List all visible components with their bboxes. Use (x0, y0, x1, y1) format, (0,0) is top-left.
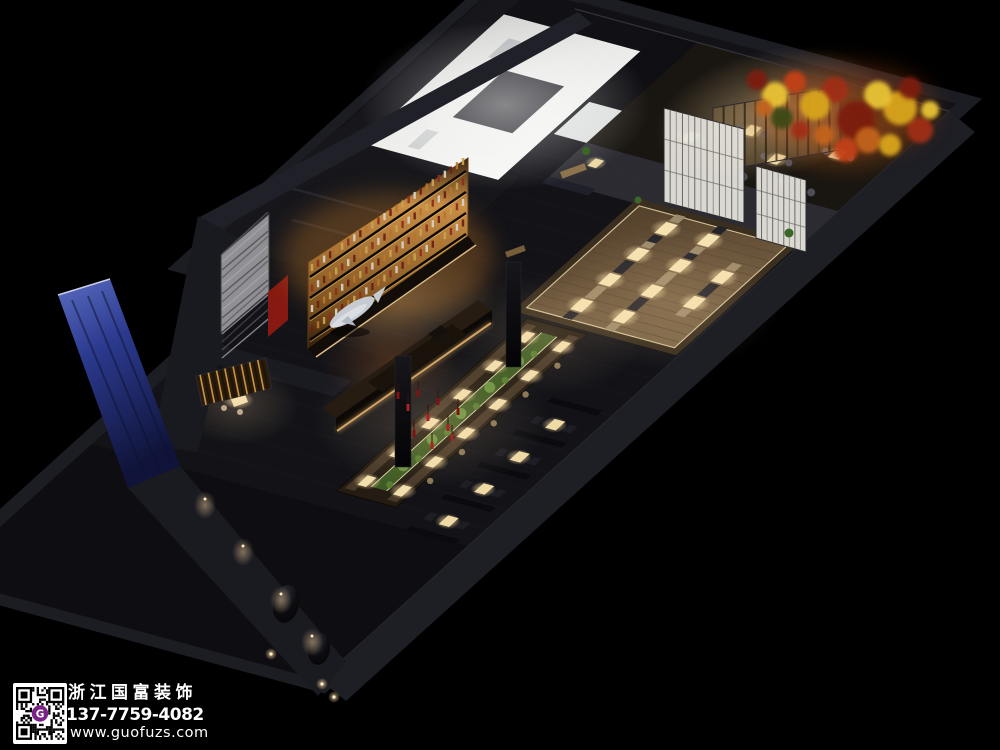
qr-cell (23, 708, 25, 710)
foliage-cluster (784, 71, 806, 93)
wine-bottle (365, 246, 367, 253)
qr-cell (39, 699, 41, 701)
qr-cell (28, 717, 30, 719)
wine-bottle (329, 251, 331, 258)
qr-cell (30, 719, 32, 721)
qr-cell (37, 731, 39, 733)
shoji-screen-small (756, 166, 806, 252)
wine-bottle (377, 279, 379, 286)
qr-cell (46, 701, 48, 703)
qr-cell (51, 719, 53, 721)
qr-cell (62, 719, 64, 721)
wine-bottle (438, 175, 440, 182)
qr-cell (16, 708, 18, 710)
wine-bottle (426, 204, 428, 211)
wine-bottle (389, 209, 391, 216)
qr-cell (53, 715, 55, 717)
wine-bottle (371, 242, 373, 249)
wine-bottle (353, 275, 355, 282)
wine-bottle (456, 162, 458, 169)
qr-cell (34, 726, 36, 728)
qr-cell (62, 710, 64, 712)
qr-cell (30, 708, 32, 710)
qr-cell (41, 728, 43, 730)
qr-cell (39, 724, 41, 726)
wine-bottle (450, 228, 452, 235)
qr-cell (32, 687, 34, 689)
foliage-cluster (921, 101, 939, 119)
entry-light (332, 695, 335, 698)
red-ornament (447, 424, 450, 431)
wine-bottle (377, 238, 379, 245)
entry-light (320, 682, 323, 685)
qr-cell (39, 728, 41, 730)
shoji2-panel (756, 166, 806, 252)
qr-cell (57, 738, 59, 740)
qr-cell (30, 710, 32, 712)
qr-cell (44, 735, 46, 737)
qr-cell (48, 733, 50, 735)
qr-cell (30, 717, 32, 719)
qr-cell (51, 731, 53, 733)
qr-monogram: G (36, 709, 45, 721)
qr-cell (46, 726, 48, 728)
qr-cell (34, 728, 36, 730)
foliage-cluster (756, 100, 772, 116)
qr-cell (37, 733, 39, 735)
qr-cell (53, 731, 55, 733)
qr-cell (48, 708, 50, 710)
qr-cell (23, 715, 25, 717)
wine-bottle (432, 220, 434, 227)
wine-bottle (401, 221, 403, 228)
qr-cell (60, 735, 62, 737)
wine-bottle (317, 301, 319, 308)
wine-bottle (383, 275, 385, 282)
wine-bottle (347, 239, 349, 246)
wine-bottle (438, 216, 440, 223)
qr-cell (53, 717, 55, 719)
wine-bottle (444, 191, 446, 198)
wine-bottle (444, 232, 446, 239)
qr-cell (44, 728, 46, 730)
downlight-scallop (270, 586, 292, 614)
qr-cell (41, 733, 43, 735)
wine-bottle (335, 268, 337, 275)
wine-bottle (359, 251, 361, 258)
qr-cell (21, 708, 23, 710)
wine-bottle (389, 270, 391, 277)
red-ornament (437, 398, 440, 405)
wine-bottle (317, 321, 319, 328)
qr-cell (51, 726, 53, 728)
qr-cell (28, 710, 30, 712)
wine-bottle (456, 224, 458, 231)
foliage-cluster (814, 125, 834, 145)
qr-cell (16, 722, 18, 724)
downlight (242, 545, 245, 548)
qr-cell (55, 708, 57, 710)
red-ornament (451, 434, 454, 441)
wine-bottle (426, 245, 428, 252)
wine-bottle (420, 229, 422, 236)
wine-bottle (420, 249, 422, 256)
qr-cell (55, 705, 57, 707)
qr-cell (25, 703, 27, 705)
wine-bottle (432, 179, 434, 186)
scene-canvas: G 浙江国富装饰 137-7759-4082 www.guofuzs.com (0, 0, 1000, 750)
red-ornament (431, 442, 434, 449)
qr-cell (39, 735, 41, 737)
wine-bottle (401, 262, 403, 269)
wine-bottle (450, 187, 452, 194)
wine-bottle (413, 212, 415, 219)
red-ornament (417, 390, 420, 397)
qr-cell (34, 724, 36, 726)
foliage-cluster (747, 70, 767, 90)
wine-bottle (413, 233, 415, 240)
qr-cell (57, 712, 59, 714)
website-url: www.guofuzs.com (70, 725, 209, 741)
wine-bottle (365, 287, 367, 294)
qr-cell (55, 735, 57, 737)
qr-cell (44, 694, 46, 696)
wine-bottle (365, 267, 367, 274)
qr-cell (37, 687, 39, 689)
qr-cell (34, 735, 36, 737)
wine-bottle (323, 297, 325, 304)
wine-bottle (365, 226, 367, 233)
wine-bottle (407, 217, 409, 224)
qr-cell (28, 722, 30, 724)
wine-bottle (335, 288, 337, 295)
wine-bottle (450, 207, 452, 214)
qr-cell (34, 738, 36, 740)
qr-cell (62, 728, 64, 730)
qr-cell (53, 712, 55, 714)
wine-bottle (462, 220, 464, 227)
wine-bottle (371, 283, 373, 290)
qr-cell (46, 692, 48, 694)
wine-bottle (359, 292, 361, 299)
wine-bottle (401, 241, 403, 248)
qr-cell (37, 692, 39, 694)
wine-bottle (341, 263, 343, 270)
qr-cell (37, 694, 39, 696)
foliage-cluster (791, 121, 809, 139)
qr-cell (46, 689, 48, 691)
wine-bottle (323, 276, 325, 283)
wine-bottle (311, 305, 313, 312)
foliage-cluster (800, 90, 830, 120)
qr-cell (51, 724, 53, 726)
qr-finder (21, 692, 28, 699)
wine-bottle (347, 280, 349, 287)
qr-cell (32, 724, 34, 726)
qr-cell (62, 731, 64, 733)
wine-bottle (395, 266, 397, 273)
qr-cell (44, 733, 46, 735)
wine-bottle (462, 199, 464, 206)
wine-bottle (359, 230, 361, 237)
qr-cell (25, 705, 27, 707)
wine-bottle (329, 292, 331, 299)
downlight-scallop (301, 628, 323, 656)
qr-cell (32, 731, 34, 733)
wine-bottle (420, 208, 422, 215)
wine-bottle (341, 284, 343, 291)
qr-cell (57, 724, 59, 726)
wine-bottle (311, 264, 313, 271)
qr-cell (16, 703, 18, 705)
wine-bottle (420, 188, 422, 195)
wine-bottle (432, 200, 434, 207)
wine-bottle (329, 272, 331, 279)
wine-bottle (456, 183, 458, 190)
foliage-cluster (771, 107, 793, 129)
company-name: 浙江国富装饰 (68, 682, 197, 703)
qr-cell (37, 703, 39, 705)
qr-cell (23, 717, 25, 719)
wine-bottle (347, 259, 349, 266)
foliage-cluster (834, 138, 858, 162)
qr-cell (57, 728, 59, 730)
qr-cell (44, 687, 46, 689)
qr-cell (53, 703, 55, 705)
wine-bottle (311, 326, 313, 333)
qr-finder (53, 692, 60, 699)
entry-light (269, 652, 272, 655)
wine-bottle (407, 237, 409, 244)
qr-cell (53, 728, 55, 730)
qr-cell (46, 738, 48, 740)
qr-cell (48, 705, 50, 707)
qr-cell (51, 735, 53, 737)
qr-cell (55, 722, 57, 724)
qr-cell (25, 719, 27, 721)
foliage-cluster (899, 77, 921, 99)
wine-bottle (377, 217, 379, 224)
qr-cell (60, 724, 62, 726)
chimney-column (395, 356, 411, 467)
wine-bottle (413, 253, 415, 260)
qr-cell (62, 703, 64, 705)
red-ornament (457, 408, 460, 415)
qr-cell (28, 715, 30, 717)
wine-bottle (311, 285, 313, 292)
qr-cell (37, 689, 39, 691)
qr-cell (51, 738, 53, 740)
red-ornament (397, 392, 400, 399)
qr-cell (32, 703, 34, 705)
wine-bottle (407, 196, 409, 203)
qr-cell (57, 733, 59, 735)
qr-cell (16, 705, 18, 707)
wine-bottle (444, 212, 446, 219)
watermark: G 浙江国富装饰 137-7759-4082 www.guofuzs.com (13, 682, 209, 744)
qr-cell (57, 703, 59, 705)
wine-bottle (438, 195, 440, 202)
wine-bottle (456, 203, 458, 210)
wine-bottle (323, 256, 325, 263)
ambient-light-pool (360, 20, 650, 190)
qr-cell (55, 715, 57, 717)
qr-cell (48, 710, 50, 712)
qr-cell (41, 694, 43, 696)
wine-bottle (432, 241, 434, 248)
restaurant-aerial-rendering: G 浙江国富装饰 137-7759-4082 www.guofuzs.com (0, 0, 1000, 750)
qr-cell (25, 715, 27, 717)
shrub (582, 147, 590, 155)
qr-cell (21, 703, 23, 705)
chair (807, 188, 815, 196)
qr-cell (51, 728, 53, 730)
qr-cell (48, 726, 50, 728)
downlight-scallop (194, 491, 216, 519)
downlight-scallop (232, 538, 254, 566)
qr-cell (21, 705, 23, 707)
qr-cell (32, 728, 34, 730)
foliage-cluster (879, 134, 901, 156)
wine-bottle (438, 236, 440, 243)
wine-bottle (371, 222, 373, 229)
qr-cell (51, 722, 53, 724)
wine-bottle (401, 200, 403, 207)
wine-bottle (317, 280, 319, 287)
whale-shadow (330, 327, 370, 337)
wine-bottle (426, 224, 428, 231)
qr-cell (48, 731, 50, 733)
foliage-cluster (855, 127, 881, 153)
wine-bottle (353, 255, 355, 262)
wine-bottle (413, 192, 415, 199)
wine-bottle (371, 263, 373, 270)
wine-bottle (395, 205, 397, 212)
downlight (311, 635, 314, 638)
wine-bottle (450, 166, 452, 173)
wine-bottle (389, 250, 391, 257)
wine-bottle (407, 258, 409, 265)
qr-cell (55, 728, 57, 730)
wine-bottle (389, 229, 391, 236)
qr-cell (55, 719, 57, 721)
qr-cell (41, 703, 43, 705)
qr-cell (46, 728, 48, 730)
shrub (635, 197, 642, 204)
qr-cell (48, 728, 50, 730)
qr-cell (57, 715, 59, 717)
wine-bottle (426, 183, 428, 190)
wine-bottle (444, 171, 446, 178)
qr-cell (60, 722, 62, 724)
wine-bottle (353, 234, 355, 241)
downlight (204, 498, 207, 501)
red-ornament (427, 414, 430, 421)
wine-bottle (383, 254, 385, 261)
qr-cell (32, 726, 34, 728)
qr-cell (46, 703, 48, 705)
qr-cell (60, 728, 62, 730)
shrub (785, 229, 794, 238)
wine-bottle (323, 317, 325, 324)
qr-cell (60, 717, 62, 719)
downlight (280, 593, 283, 596)
qr-cell (41, 689, 43, 691)
chimney-column (506, 262, 521, 367)
wine-bottle (395, 246, 397, 253)
qr-code: G (13, 683, 67, 744)
qr-cell (34, 731, 36, 733)
wine-bottle (462, 179, 464, 186)
wine-bottle (377, 258, 379, 265)
qr-cell (41, 699, 43, 701)
wine-bottle (383, 213, 385, 220)
qr-cell (32, 689, 34, 691)
wine-bottle (359, 271, 361, 278)
wine-bottle (335, 247, 337, 254)
qr-cell (25, 710, 27, 712)
qr-cell (23, 722, 25, 724)
qr-cell (41, 724, 43, 726)
qr-cell (57, 708, 59, 710)
qr-cell (21, 717, 23, 719)
qr-cell (62, 738, 64, 740)
wine-bottle (317, 260, 319, 267)
qr-cell (62, 712, 64, 714)
wine-bottle (462, 158, 464, 165)
qr-cell (21, 719, 23, 721)
qr-finder (21, 728, 28, 735)
qr-cell (37, 728, 39, 730)
red-ornament (413, 430, 416, 437)
qr-cell (48, 712, 50, 714)
qr-cell (60, 705, 62, 707)
phone-number: 137-7759-4082 (66, 705, 204, 725)
wine-bottle (329, 313, 331, 320)
qr-cell (34, 733, 36, 735)
wine-bottle (383, 234, 385, 241)
qr-cell (44, 699, 46, 701)
wine-bottle (341, 243, 343, 250)
qr-cell (39, 738, 41, 740)
qr-cell (39, 701, 41, 703)
qr-cell (39, 694, 41, 696)
foliage-cluster (864, 81, 892, 109)
red-ornament (407, 404, 410, 411)
wine-bottle (395, 225, 397, 232)
qr-cell (51, 733, 53, 735)
